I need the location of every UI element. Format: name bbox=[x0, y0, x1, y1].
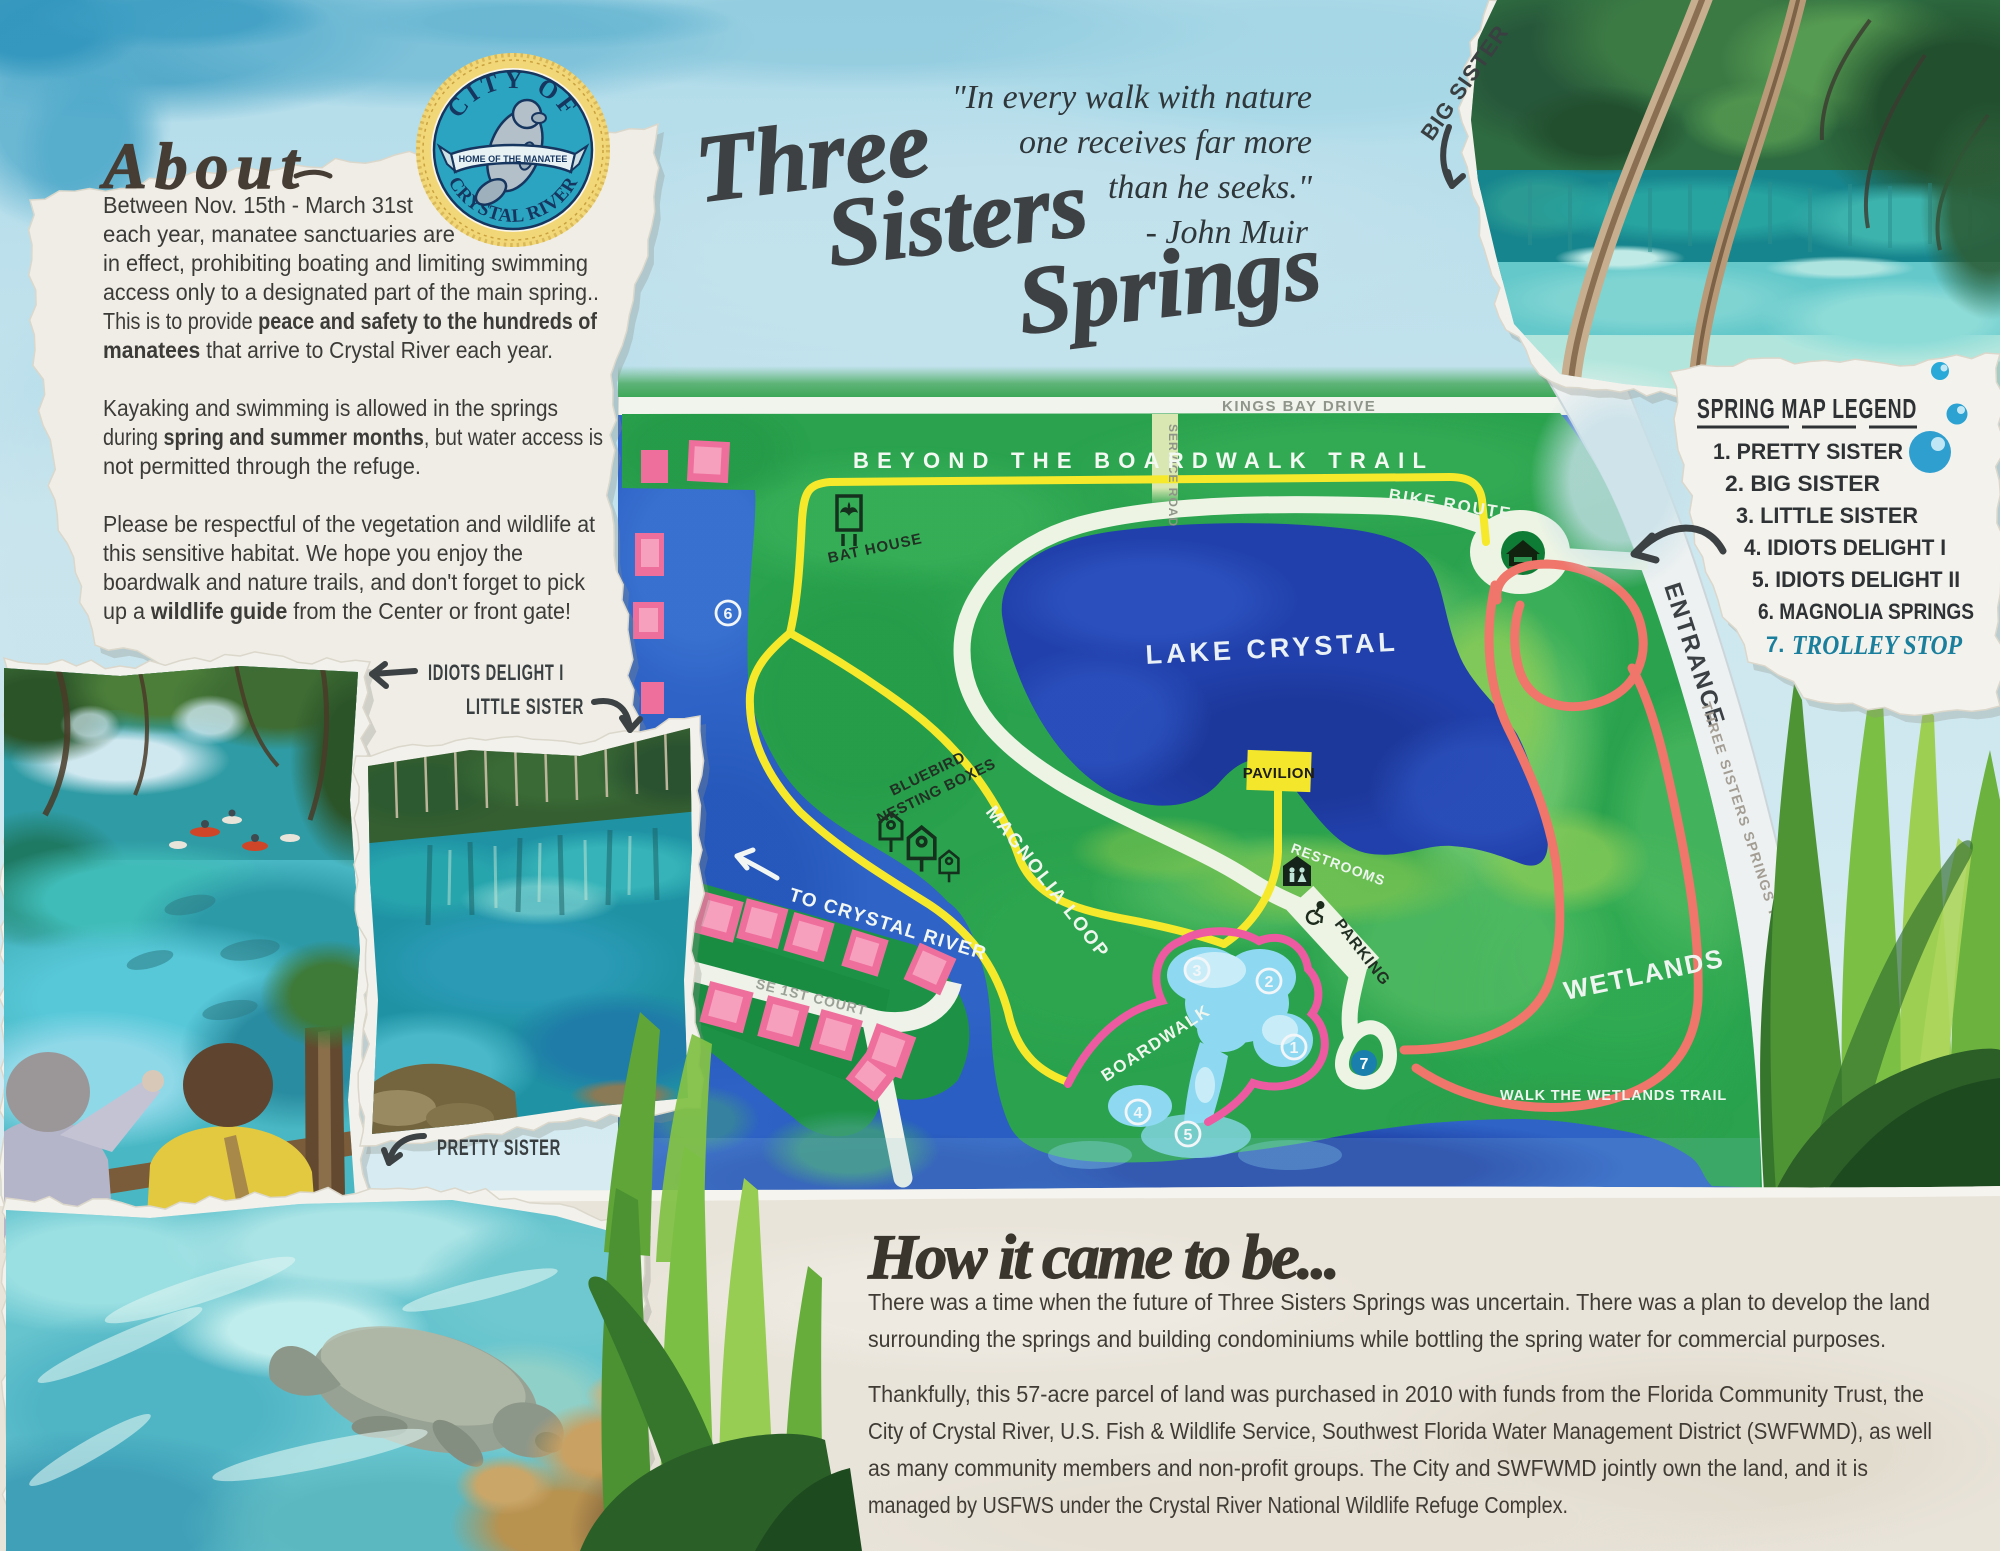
svg-text:3: 3 bbox=[1193, 963, 1202, 980]
svg-text:7.: 7. bbox=[1766, 632, 1784, 657]
svg-text:boardwalk and nature trails, a: boardwalk and nature trails, and don't f… bbox=[103, 569, 585, 595]
svg-text:Please be respectful of the ve: Please be respectful of the vegetation a… bbox=[103, 511, 595, 537]
svg-text:WALK THE WETLANDS TRAIL: WALK THE WETLANDS TRAIL bbox=[1500, 1088, 1727, 1104]
svg-text:Kayaking and swimming is allow: Kayaking and swimming is allowed in the … bbox=[103, 395, 558, 421]
svg-text:3. LITTLE SISTER: 3. LITTLE SISTER bbox=[1736, 503, 1918, 528]
svg-text:surrounding the springs and bu: surrounding the springs and building con… bbox=[868, 1326, 1886, 1352]
svg-text:not permitted through the refu: not permitted through the refuge. bbox=[103, 453, 421, 479]
svg-text:How it came to be...: How it came to be... bbox=[867, 1221, 1340, 1292]
svg-text:7: 7 bbox=[1360, 1056, 1369, 1073]
svg-text:HOME OF THE MANATEE: HOME OF THE MANATEE bbox=[459, 154, 568, 164]
svg-text:PRETTY SISTER: PRETTY SISTER bbox=[437, 1135, 561, 1160]
svg-text:managed by USFWS under the Cry: managed by USFWS under the Crystal River… bbox=[868, 1492, 1568, 1518]
svg-text:each year, manatee sanctuaries: each year, manatee sanctuaries are bbox=[103, 221, 455, 247]
svg-text:6: 6 bbox=[724, 606, 733, 623]
svg-text:SPRING MAP LEGEND: SPRING MAP LEGEND bbox=[1697, 393, 1917, 424]
svg-text:2: 2 bbox=[1265, 974, 1274, 991]
svg-text:1. PRETTY SISTER: 1. PRETTY SISTER bbox=[1713, 439, 1903, 464]
svg-text:than he seeks.": than he seeks." bbox=[1108, 169, 1313, 206]
svg-text:LITTLE SISTER: LITTLE SISTER bbox=[466, 694, 584, 719]
svg-text:as many community members and: as many community members and non-profit… bbox=[868, 1455, 1868, 1481]
svg-text:6. MAGNOLIA SPRINGS: 6. MAGNOLIA SPRINGS bbox=[1758, 599, 1974, 624]
svg-text:1: 1 bbox=[1290, 1040, 1299, 1057]
svg-text:manatees that arrive to Crysta: manatees that arrive to Crystal River ea… bbox=[103, 337, 553, 363]
svg-text:TROLLEY STOP: TROLLEY STOP bbox=[1792, 630, 1962, 660]
svg-text:PAVILION: PAVILION bbox=[1243, 765, 1316, 782]
svg-text:access only to a designated pa: access only to a designated part of the … bbox=[103, 279, 599, 305]
svg-text:This is to provide peace and s: This is to provide peace and safety to t… bbox=[103, 308, 597, 334]
svg-text:Thankfully, this 57-acre parce: Thankfully, this 57-acre parcel of land … bbox=[868, 1381, 1924, 1407]
svg-text:- John Muir: - John Muir bbox=[1146, 214, 1309, 251]
svg-text:4. IDIOTS DELIGHT I: 4. IDIOTS DELIGHT I bbox=[1744, 535, 1946, 560]
svg-text:Between Nov. 15th - March 31st: Between Nov. 15th - March 31st bbox=[103, 192, 413, 218]
svg-text:IDIOTS DELIGHT I: IDIOTS DELIGHT I bbox=[428, 660, 564, 685]
svg-text:2. BIG SISTER: 2. BIG SISTER bbox=[1725, 471, 1880, 496]
svg-text:up a wildlife guide from the C: up a wildlife guide from the Center or f… bbox=[103, 598, 571, 624]
svg-text:5. IDIOTS DELIGHT II: 5. IDIOTS DELIGHT II bbox=[1752, 567, 1960, 592]
svg-text:one receives far more: one receives far more bbox=[1019, 124, 1312, 161]
svg-text:KINGS BAY DRIVE: KINGS BAY DRIVE bbox=[1222, 398, 1376, 415]
svg-text:SERVICE ROAD: SERVICE ROAD bbox=[1166, 424, 1180, 527]
svg-text:City of Crystal River, U.S. Fi: City of Crystal River, U.S. Fish & Wildl… bbox=[868, 1418, 1932, 1444]
svg-text:during spring and summer month: during spring and summer months, but wat… bbox=[103, 424, 603, 450]
svg-text:this sensitive habitat. We hop: this sensitive habitat. We hope you enjo… bbox=[103, 540, 523, 566]
svg-text:"In every walk with nature: "In every walk with nature bbox=[952, 79, 1313, 116]
svg-text:There was a time when the futu: There was a time when the future of Thre… bbox=[868, 1289, 1930, 1315]
svg-text:5: 5 bbox=[1184, 1127, 1193, 1144]
svg-text:4: 4 bbox=[1134, 1105, 1143, 1122]
svg-text:in effect, prohibiting boating: in effect, prohibiting boating and limit… bbox=[103, 250, 588, 276]
